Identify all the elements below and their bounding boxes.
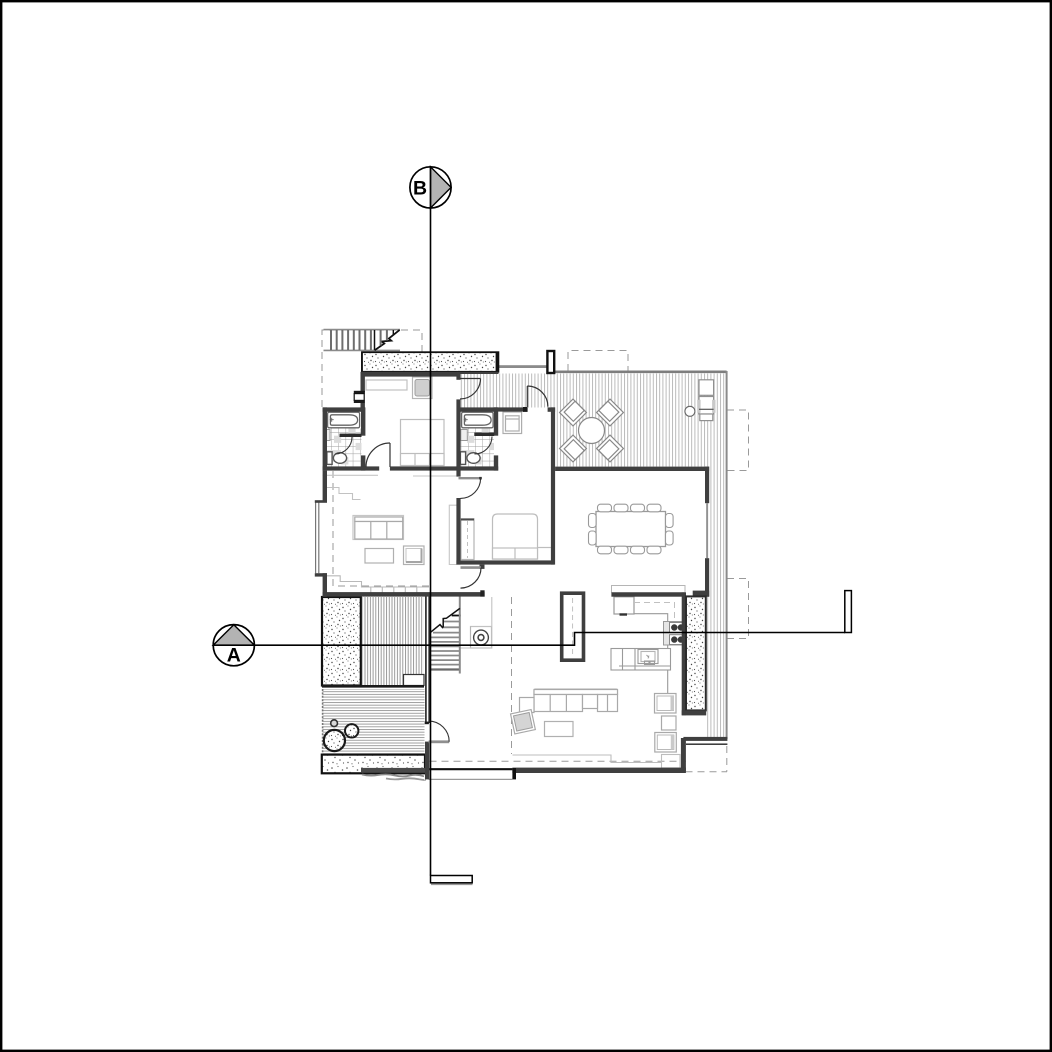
svg-text:A: A: [227, 645, 241, 667]
svg-text:B: B: [413, 178, 427, 200]
